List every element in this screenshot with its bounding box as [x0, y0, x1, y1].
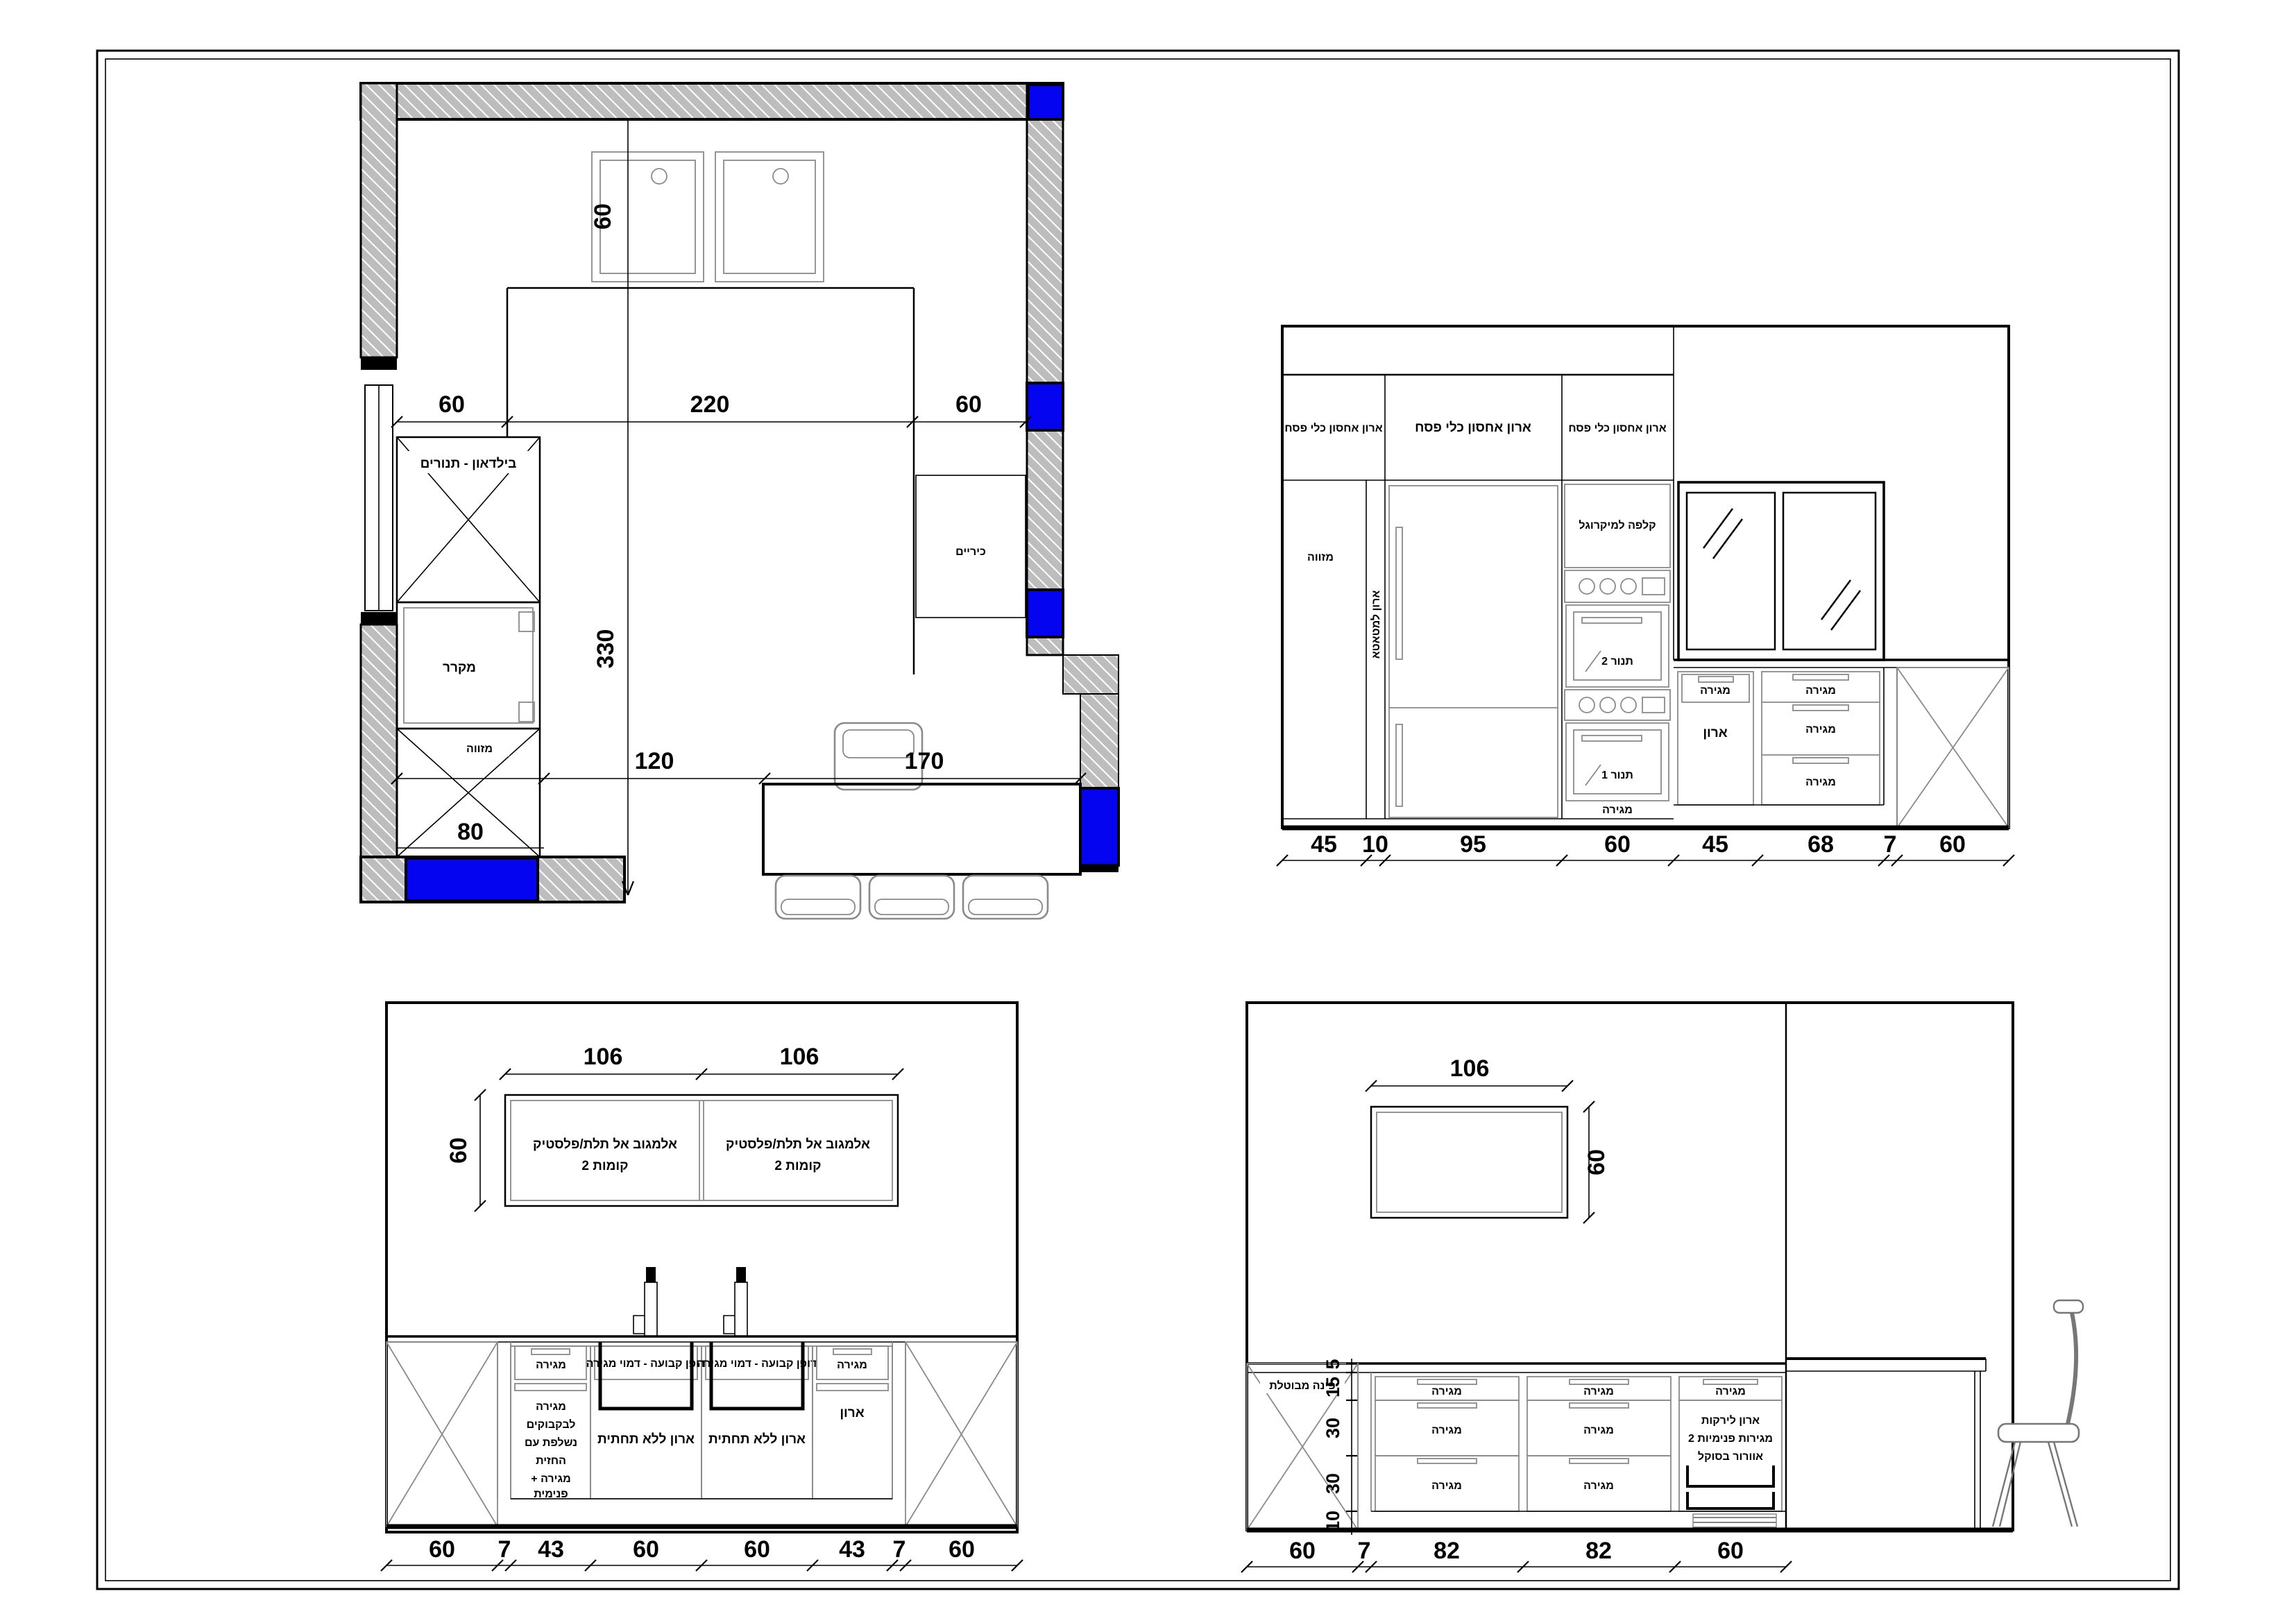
- dim-top-right: 60: [955, 391, 982, 418]
- dim-top-mid: 220: [690, 391, 730, 418]
- island-x-right: [905, 1342, 1017, 1527]
- dim: 10: [1323, 1511, 1343, 1531]
- dim: 7: [1884, 831, 1897, 858]
- void-panel: [1897, 668, 2009, 828]
- faucet: [724, 1267, 747, 1336]
- bottle-line: החזית: [536, 1455, 566, 1467]
- veg-line: ארון לירקות: [1701, 1414, 1760, 1427]
- drawer-stack-1: מגירה מגירה מגירה: [1375, 1377, 1519, 1511]
- dim: 82: [1585, 1538, 1612, 1564]
- cooktop-label: כיריים: [955, 546, 986, 558]
- bottle-line: לבקבוקים: [527, 1418, 576, 1431]
- upper-cab-right-l1: אלמגוב אל תלת/פלסטיק: [726, 1137, 870, 1152]
- sink-cabinet-left: דופן קבועה - דמוי מגירה ארון ללא תחתית: [586, 1342, 706, 1499]
- fridge-box: מקרר: [397, 602, 540, 729]
- drawer-label: מגירה: [1431, 1386, 1462, 1397]
- dim: 60: [949, 1536, 975, 1563]
- pantry-label: מזווה: [466, 743, 493, 755]
- drawer-label: מגירה: [1583, 1480, 1614, 1492]
- drawer-stack-2: מגירה מגירה מגירה: [1527, 1377, 1671, 1511]
- window: [365, 385, 393, 611]
- bar-stool: [1993, 1300, 2083, 1527]
- faucet: [633, 1267, 657, 1336]
- upper-cab-left-l2: 2 קומות: [581, 1159, 628, 1173]
- sink-cabinet-right: דופן קבועה - דמוי מגירה ארון ללא תחתית: [697, 1342, 817, 1499]
- dim: 60: [744, 1536, 770, 1563]
- counter-outline: [507, 288, 914, 674]
- walls: [361, 83, 1119, 902]
- microwave-flap-label: קלפה למיקרוגל: [1579, 519, 1656, 532]
- drawer-label: מגירה: [1715, 1386, 1746, 1397]
- dining-table: [763, 784, 1080, 874]
- broom-cabinet-label: ארון למטאטא: [1370, 590, 1382, 659]
- cabinet-label: ארון: [1703, 726, 1727, 740]
- base-drawers-68: מגירה מגירה מגירה: [1762, 672, 1880, 805]
- drawer-label: מגירה: [837, 1359, 867, 1371]
- drawer-label: מגירה: [1805, 685, 1836, 697]
- drawer-label: מגירה: [1431, 1480, 1462, 1492]
- upper-cab-right-l2: 2 קומות: [774, 1159, 821, 1173]
- fridge-label: מקרר: [443, 661, 476, 675]
- bottle-drawer-column: מגירה מגירה לבקבוקים נשלפת עם החזית + מג…: [511, 1346, 590, 1500]
- upper-cabinet-label: ארון אחסון כלי פסח: [1284, 422, 1382, 434]
- dim: 106: [584, 1044, 623, 1070]
- dim: 7: [498, 1536, 511, 1563]
- drawer-label: מגירה: [536, 1359, 566, 1371]
- chair: [963, 876, 1048, 919]
- upper-cabinet-label: ארון אחסון כלי פסח: [1415, 420, 1531, 435]
- dim-sink-depth: 60: [590, 203, 616, 230]
- dim: 7: [893, 1536, 906, 1563]
- dim: 45: [1702, 831, 1728, 858]
- bottle-line: נשלפת עם: [525, 1436, 577, 1449]
- oven1-label: תנור 1: [1601, 770, 1633, 781]
- fixed-panel-label: דופן קבועה - דמוי מגירה: [586, 1358, 706, 1370]
- fridge-elevation: [1389, 486, 1558, 817]
- bottle-line: + מגירה: [531, 1473, 570, 1485]
- veg-line: אוורור בסוקל: [1698, 1450, 1763, 1463]
- glass-doors-unit: [1678, 482, 1884, 660]
- chair: [776, 876, 860, 919]
- elevation-island: אלמגוב אל תלת/פלסטיק 2 קומות אלמגוב אל ת…: [381, 1003, 1023, 1571]
- dim-pantry-width: 80: [457, 819, 484, 845]
- dim: 15: [1323, 1377, 1343, 1397]
- vegetable-cabinet: מגירה ארון לירקות 2 מגירות פנימיות אוורו…: [1679, 1377, 1782, 1528]
- floor-plan: בילדאון - תנורים מקרר מזווה כיריים: [361, 83, 1119, 919]
- dim: 60: [1289, 1538, 1316, 1564]
- pantry-column-label: מזווה: [1307, 552, 1334, 563]
- dim: 30: [1323, 1473, 1343, 1494]
- island-cabinet-right43: מגירה ארון: [813, 1346, 892, 1499]
- plan-dimensions: 60 220 60 330 60 120 170 80: [391, 119, 1086, 895]
- dim: 10: [1362, 831, 1388, 858]
- dim-bottom-left: 120: [635, 748, 674, 774]
- drawer-label: מגירה: [1700, 685, 1730, 697]
- drawer-label: מגירה: [1805, 724, 1836, 736]
- island-upper-dims: 106 106 60: [445, 1044, 903, 1212]
- drawer-label: מגירה: [1583, 1425, 1614, 1436]
- ovens-niche-label: בילדאון - תנורים: [420, 457, 517, 471]
- chair: [869, 876, 954, 919]
- drawing-sheet: בילדאון - תנורים מקרר מזווה כיריים: [0, 0, 2296, 1623]
- oven-column: קלפה למיקרוגל תנור 2 תנור 1 מגירה: [1565, 484, 1670, 816]
- dim-bottom-right: 170: [905, 748, 944, 774]
- elevation-right-wall: ארון אחסון כלי פסח ארון אחסון כלי פסח אר…: [1277, 326, 2014, 866]
- dim: 5: [1323, 1359, 1343, 1369]
- dim: 106: [780, 1044, 819, 1070]
- dim: 60: [1604, 831, 1631, 858]
- dim-depth: 330: [593, 629, 619, 669]
- no-bottom-label: ארון ללא תחתית: [708, 1432, 806, 1447]
- dim: 82: [1434, 1538, 1460, 1564]
- fixed-panel-label: דופן קבועה - דמוי מגירה: [697, 1358, 817, 1370]
- oven-column-drawer: מגירה: [1602, 804, 1633, 816]
- corner-cab-dims: 106 60: [1366, 1055, 1610, 1223]
- island-x-left: [386, 1342, 498, 1527]
- elevation-right-dims: 45 10 95 60 45 68 7 60: [1277, 831, 2014, 866]
- drawer-label: מגירה: [1805, 776, 1836, 788]
- dim: 43: [538, 1536, 564, 1563]
- dim: 60: [633, 1536, 659, 1563]
- corner-dims: 60 7 82 82 60: [1241, 1538, 1792, 1572]
- cooktop-box: כיריים: [916, 475, 1026, 618]
- dim: 106: [1450, 1055, 1490, 1082]
- dim: 60: [1939, 831, 1966, 858]
- dim-top-left: 60: [439, 391, 465, 418]
- drawer-label: מגירה: [1583, 1386, 1614, 1397]
- drawer-label: מגירה: [1431, 1425, 1462, 1436]
- cabinet-label: ארון: [840, 1406, 864, 1420]
- island-upper-cabinets: אלמגוב אל תלת/פלסטיק 2 קומות אלמגוב אל ת…: [505, 1095, 898, 1206]
- dim: 60: [429, 1536, 455, 1563]
- dim: 95: [1460, 831, 1486, 858]
- upper-cabinet-label: ארון אחסון כלי פסח: [1568, 422, 1666, 434]
- sink-right: [715, 152, 824, 282]
- dim: 30: [1323, 1418, 1343, 1438]
- corner-vertical-dims: 5 15 30 30 10: [1323, 1359, 1357, 1535]
- dim: 68: [1808, 831, 1834, 858]
- dim-height: 60: [445, 1137, 472, 1164]
- island-dims: 60 7 43 60 60 43 7 60: [381, 1536, 1023, 1571]
- dim: 60: [1717, 1538, 1744, 1564]
- dim: 43: [839, 1536, 865, 1563]
- oven2-label: תנור 2: [1601, 656, 1633, 668]
- upper-cab-left-l1: אלמגוב אל תלת/פלסטיק: [533, 1137, 677, 1152]
- veg-line: 2 מגירות פנימיות: [1688, 1433, 1773, 1445]
- corner-wall-cabinet: [1371, 1107, 1567, 1218]
- base-cabinet-45: מגירה ארון: [1678, 672, 1753, 805]
- bar-counter: [1786, 1359, 1986, 1529]
- bottle-line: מגירה: [536, 1401, 566, 1413]
- dim: 7: [1358, 1538, 1371, 1564]
- elevation-corner: 106 60 פינה מבוטלת מגירה מגירה: [1241, 1003, 2083, 1572]
- dim: 45: [1311, 831, 1337, 858]
- dim: 60: [1583, 1149, 1610, 1175]
- ovens-niche-box: בילדאון - תנורים: [397, 437, 540, 602]
- no-bottom-label: ארון ללא תחתית: [597, 1432, 695, 1447]
